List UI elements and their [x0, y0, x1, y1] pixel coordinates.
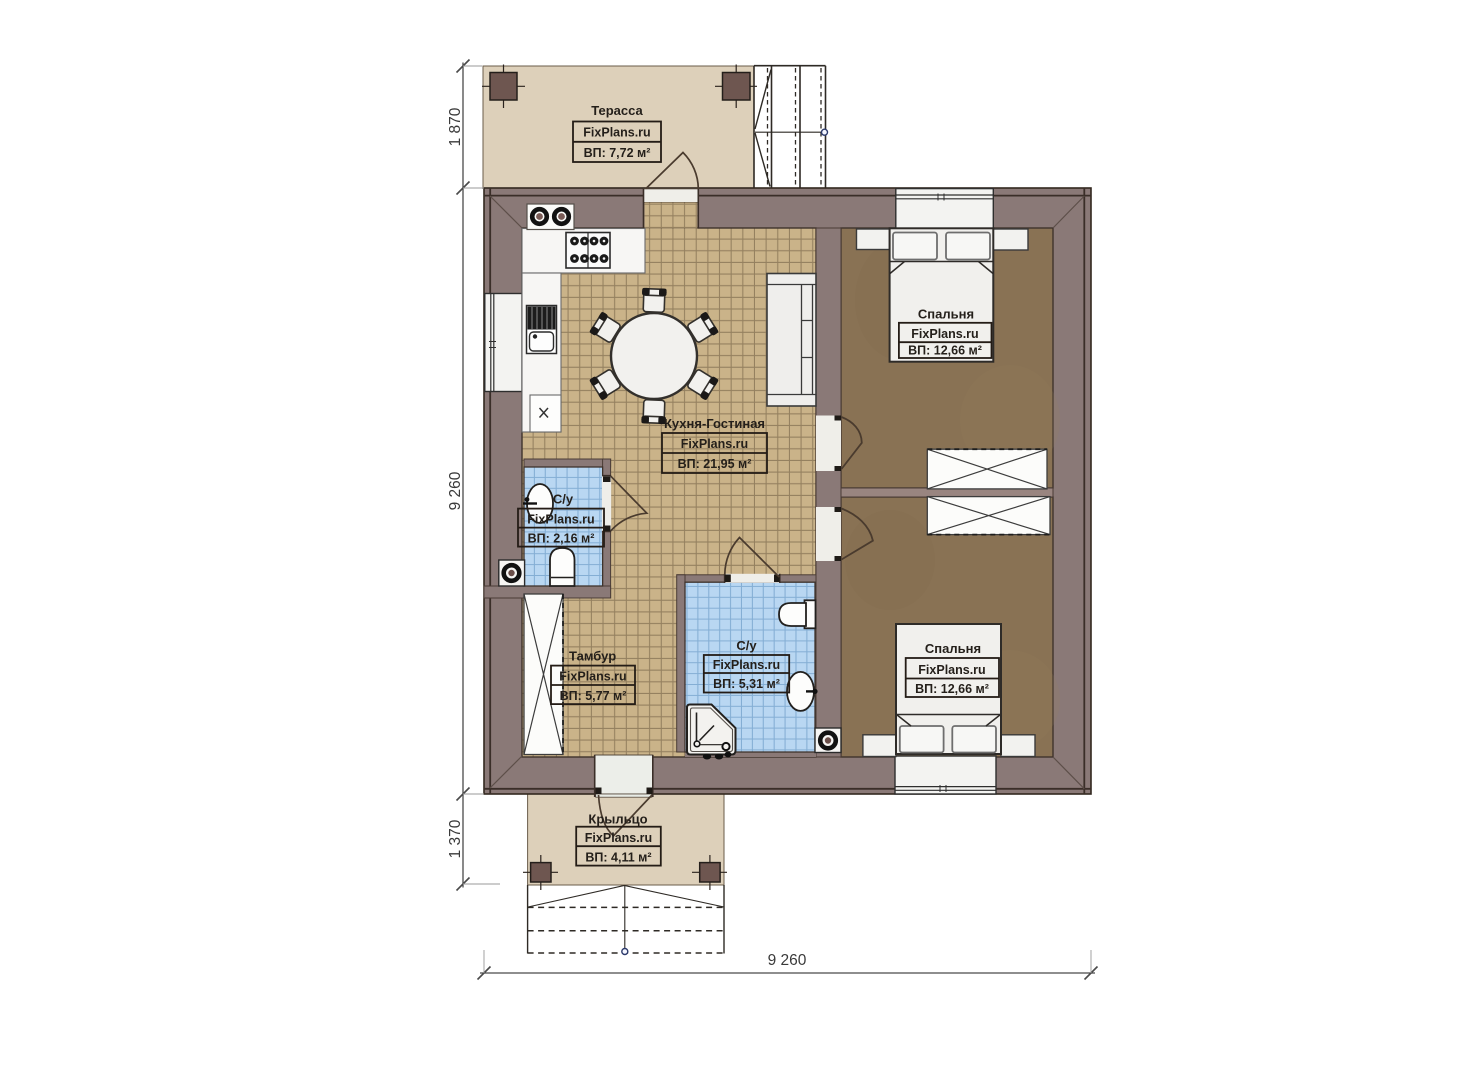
svg-text:ВП: 21,95 м²: ВП: 21,95 м² — [678, 457, 752, 471]
svg-text:ВП: 12,66 м²: ВП: 12,66 м² — [908, 344, 982, 358]
svg-text:ВП: 4,11 м²: ВП: 4,11 м² — [585, 851, 651, 865]
svg-text:С/у: С/у — [553, 492, 574, 507]
svg-text:FixPlans.ru: FixPlans.ru — [527, 513, 594, 527]
svg-text:FixPlans.ru: FixPlans.ru — [559, 670, 626, 684]
svg-text:FixPlans.ru: FixPlans.ru — [585, 831, 652, 845]
svg-text:С/у: С/у — [736, 638, 757, 653]
svg-text:Спальня: Спальня — [925, 641, 981, 656]
svg-text:FixPlans.ru: FixPlans.ru — [583, 126, 650, 140]
svg-text:ВП: 5,77 м²: ВП: 5,77 м² — [560, 689, 627, 703]
svg-text:1 370: 1 370 — [447, 819, 464, 858]
svg-text:Кухня-Гостиная: Кухня-Гостиная — [664, 416, 765, 431]
svg-text:ВП: 12,66 м²: ВП: 12,66 м² — [915, 682, 989, 696]
svg-text:9 260: 9 260 — [768, 952, 807, 969]
svg-text:1 870: 1 870 — [447, 107, 464, 146]
svg-text:9 260: 9 260 — [447, 471, 464, 510]
svg-text:FixPlans.ru: FixPlans.ru — [918, 663, 985, 677]
svg-text:Терасса: Терасса — [591, 103, 643, 118]
svg-text:ВП: 7,72 м²: ВП: 7,72 м² — [584, 146, 651, 160]
svg-text:ВП: 5,31 м²: ВП: 5,31 м² — [713, 677, 780, 691]
svg-text:FixPlans.ru: FixPlans.ru — [713, 658, 780, 672]
svg-text:Спальня: Спальня — [918, 307, 974, 322]
svg-text:Крыльцо: Крыльцо — [588, 812, 647, 827]
svg-text:FixPlans.ru: FixPlans.ru — [681, 437, 748, 451]
svg-text:ВП: 2,16 м²: ВП: 2,16 м² — [528, 532, 595, 546]
svg-text:Тамбур: Тамбур — [569, 649, 616, 664]
svg-text:FixPlans.ru: FixPlans.ru — [911, 327, 978, 341]
